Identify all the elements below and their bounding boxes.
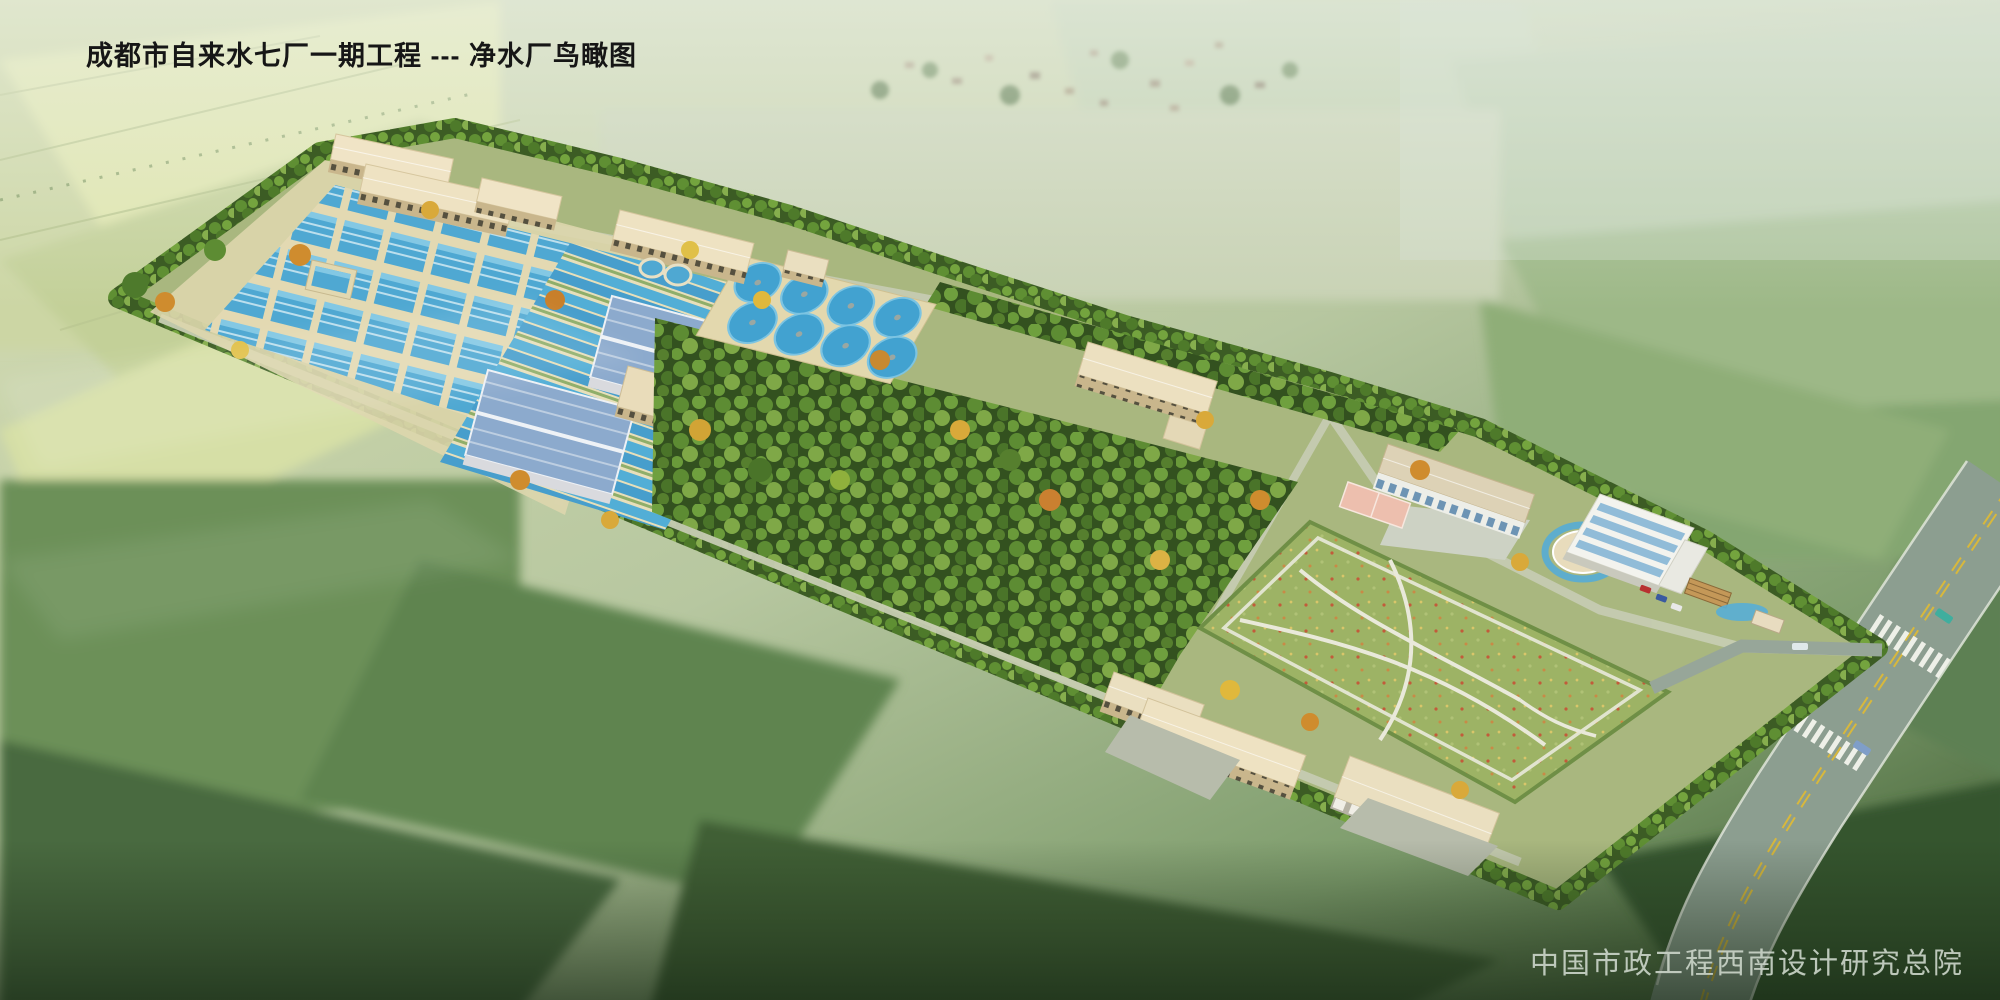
storage-tank (665, 265, 691, 285)
rendering-stage: 成都市自来水七厂一期工程 --- 净水厂鸟瞰图 中国市政工程西南设计研究总院 (0, 0, 2000, 1000)
corner-haze (1400, 0, 2000, 260)
storage-tank (640, 259, 664, 277)
scene-rendering (0, 0, 2000, 1000)
design-institute-credit: 中国市政工程西南设计研究总院 (1530, 940, 1964, 982)
car (1792, 643, 1808, 650)
drawing-title: 成都市自来水七厂一期工程 --- 净水厂鸟瞰图 (86, 34, 637, 73)
